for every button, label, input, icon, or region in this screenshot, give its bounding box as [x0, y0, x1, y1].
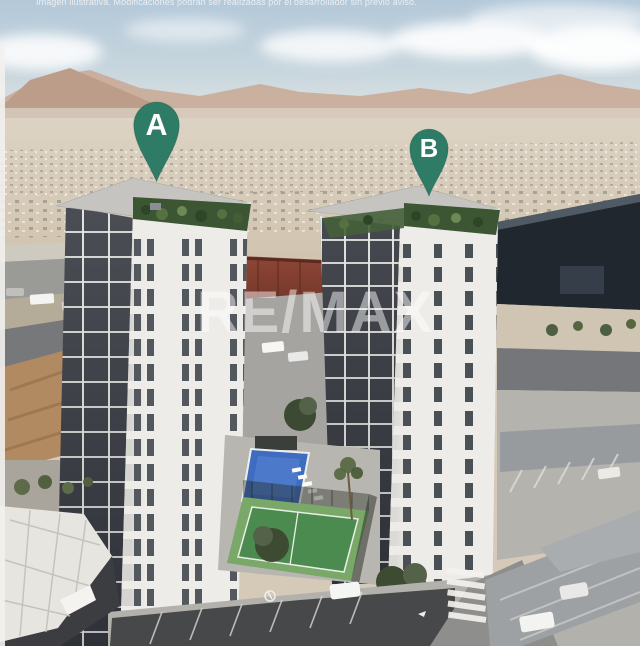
- remax-watermark: RE/MAX: [158, 279, 473, 346]
- render-image: RE/MAX A B Imagen ilustrativa. Modificac…: [0, 0, 640, 646]
- pin-b-label: B: [420, 135, 438, 163]
- cabana: [255, 436, 297, 450]
- photo-edge-strip: [0, 44, 5, 646]
- map-pin-b-icon: B: [405, 124, 453, 198]
- bushes: [14, 475, 93, 495]
- pin-a-label: A: [146, 108, 168, 142]
- disclaimer-text: Imagen ilustrativa. Modificaciones podrá…: [36, 0, 417, 7]
- map-pin-b: B: [405, 124, 453, 198]
- map-pin-a-icon: A: [128, 96, 185, 184]
- carport-canopy-left: [0, 475, 120, 646]
- map-pin-a: A: [128, 96, 185, 184]
